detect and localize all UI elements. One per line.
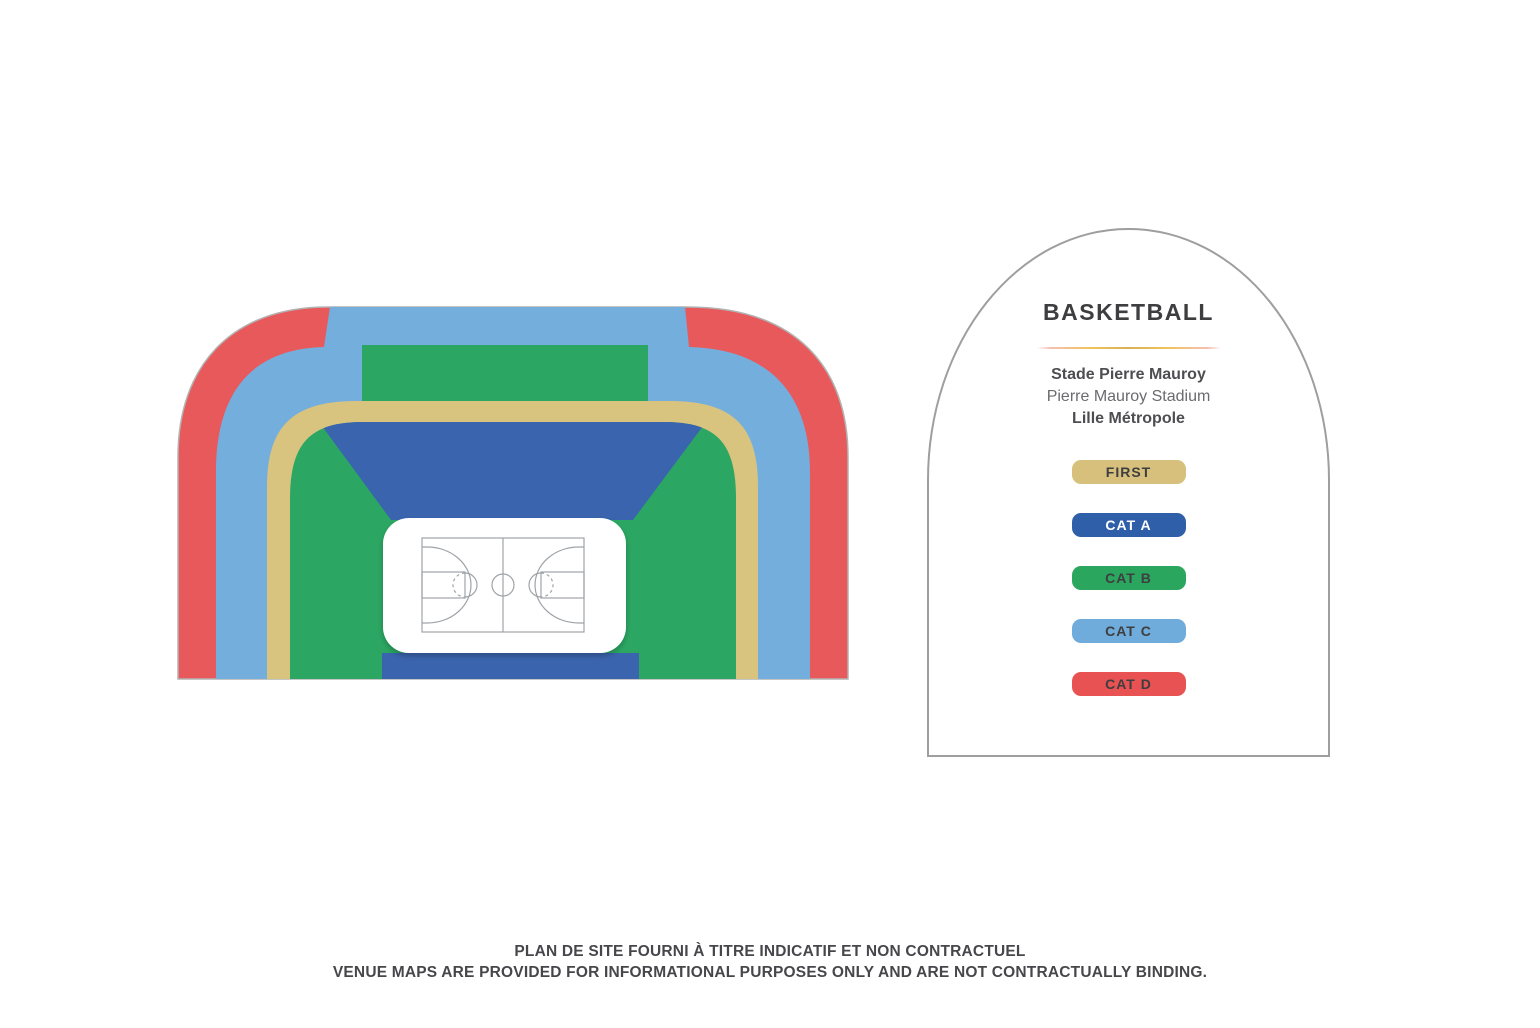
- section-cat-a-lower: [382, 653, 639, 679]
- footer-disclaimer: PLAN DE SITE FOURNI À TITRE INDICATIF ET…: [0, 941, 1540, 983]
- venue-name-fr: Stade Pierre Mauroy: [929, 364, 1328, 386]
- stadium-seating-map: [176, 305, 850, 681]
- legend-badge-cat-c: CAT C: [1072, 619, 1186, 643]
- basketball-court: [383, 518, 626, 653]
- venue-city: Lille Métropole: [929, 408, 1328, 430]
- venue-map-page: BASKETBALL Stade Pierre Mauroy Pierre Ma…: [0, 0, 1540, 1028]
- category-legend: FIRST CAT A CAT B CAT C CAT D: [929, 460, 1328, 696]
- legend-badge-cat-b: CAT B: [1072, 566, 1186, 590]
- section-cat-b-upper: [362, 345, 648, 401]
- venue-names: Stade Pierre Mauroy Pierre Mauroy Stadiu…: [929, 364, 1328, 430]
- disclaimer-line-fr: PLAN DE SITE FOURNI À TITRE INDICATIF ET…: [0, 941, 1540, 962]
- legend-badge-first: FIRST: [1072, 460, 1186, 484]
- gradient-divider: [1037, 347, 1221, 349]
- venue-name-en: Pierre Mauroy Stadium: [929, 386, 1328, 408]
- sport-title: BASKETBALL: [929, 298, 1328, 326]
- legend-badge-cat-d: CAT D: [1072, 672, 1186, 696]
- legend-badge-cat-a: CAT A: [1072, 513, 1186, 537]
- disclaimer-line-en: VENUE MAPS ARE PROVIDED FOR INFORMATIONA…: [0, 962, 1540, 983]
- legend-card: BASKETBALL Stade Pierre Mauroy Pierre Ma…: [927, 228, 1330, 757]
